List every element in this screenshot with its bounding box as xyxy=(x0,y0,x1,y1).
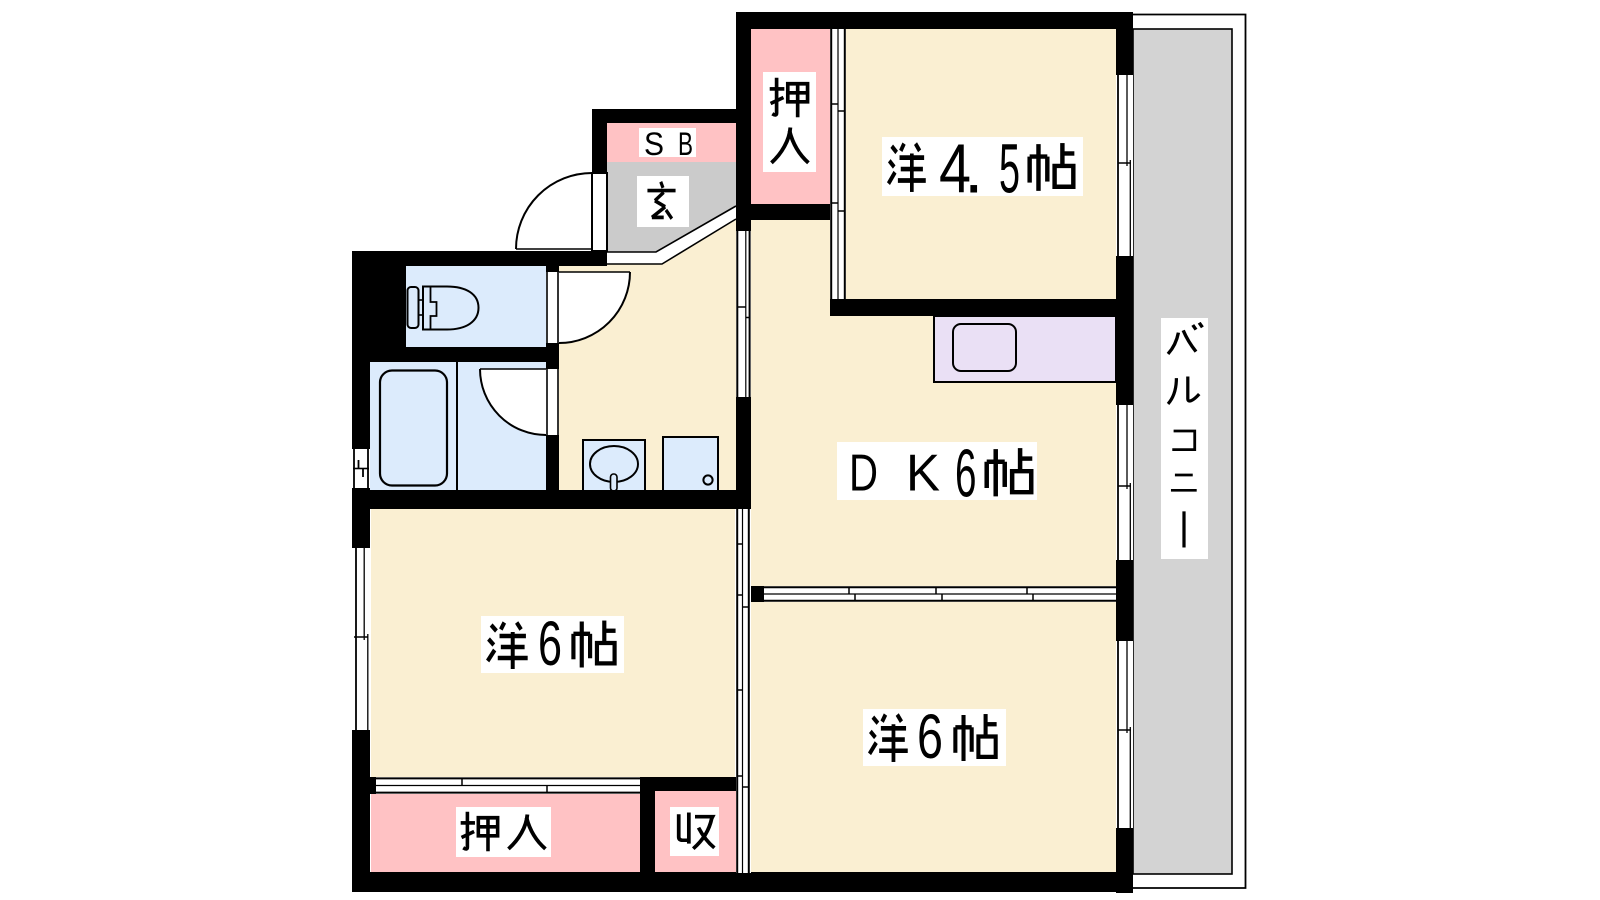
svg-text:6: 6 xyxy=(538,609,562,679)
svg-text:D: D xyxy=(849,445,878,503)
svg-text:.: . xyxy=(964,130,983,208)
svg-text:6: 6 xyxy=(917,702,943,772)
svg-text:B: B xyxy=(678,126,693,162)
svg-text:6: 6 xyxy=(955,436,977,512)
svg-text:S: S xyxy=(644,126,664,162)
svg-text:K: K xyxy=(906,445,940,503)
svg-text:5: 5 xyxy=(999,130,1020,208)
